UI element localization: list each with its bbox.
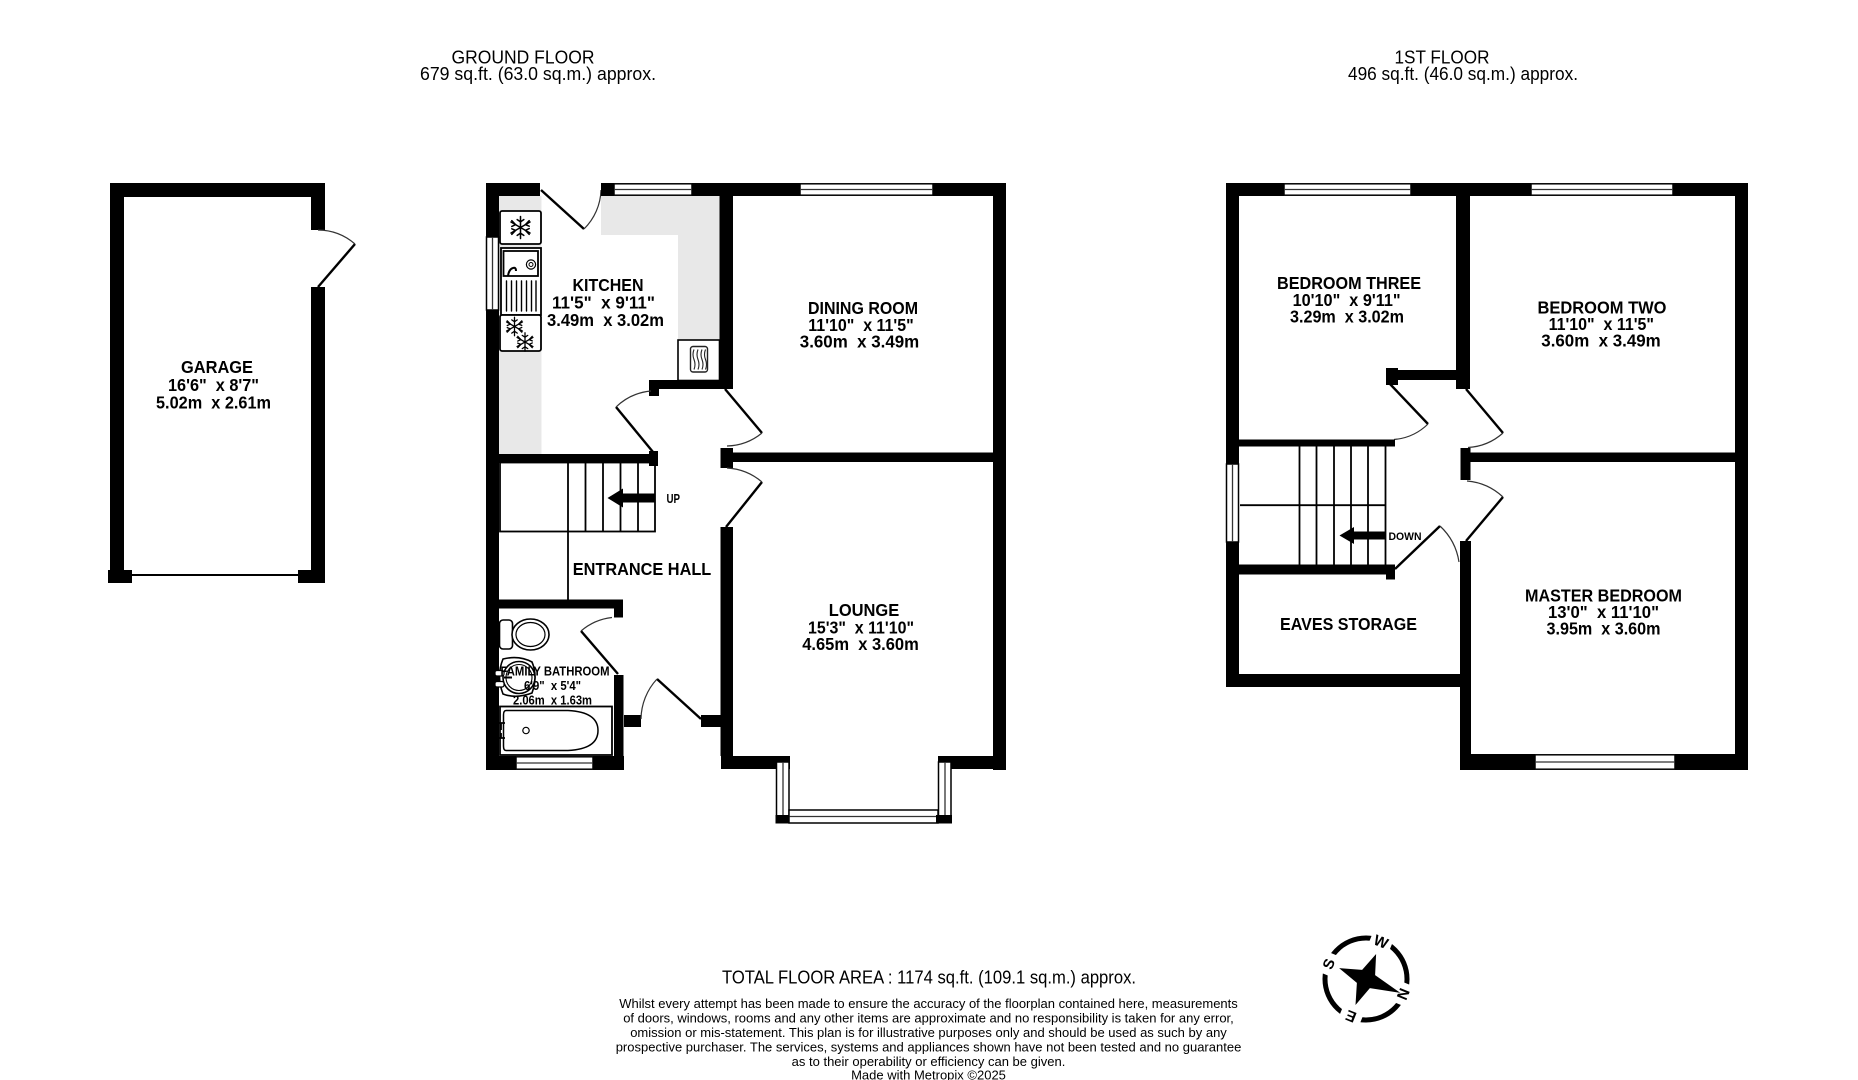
svg-text:679 sq.ft. (63.0 sq.m.) approx: 679 sq.ft. (63.0 sq.m.) approx.	[420, 63, 656, 84]
svg-text:TOTAL FLOOR AREA : 1174 sq.ft.: TOTAL FLOOR AREA : 1174 sq.ft. (109.1 sq…	[722, 967, 1136, 988]
svg-text:3.49m x 3.02m: 3.49m x 3.02m	[547, 310, 664, 330]
svg-text:3.95m x 3.60m: 3.95m x 3.60m	[1547, 619, 1661, 639]
svg-text:prospective purchaser. The ser: prospective purchaser. The services, sys…	[616, 1040, 1242, 1055]
svg-text:EAVES STORAGE: EAVES STORAGE	[1280, 614, 1417, 634]
svg-text:DOWN: DOWN	[1389, 531, 1422, 543]
svg-text:Made with Metropix ©2025: Made with Metropix ©2025	[851, 1068, 1006, 1080]
svg-text:GARAGE: GARAGE	[181, 357, 253, 377]
svg-text:5.02m x 2.61m: 5.02m x 2.61m	[156, 393, 271, 413]
svg-text:UP: UP	[667, 492, 681, 506]
svg-text:omission or mis-statement. Thi: omission or mis-statement. This plan is …	[630, 1025, 1227, 1040]
svg-text:3.60m x 3.49m: 3.60m x 3.49m	[800, 332, 919, 352]
svg-text:3.29m x 3.02m: 3.29m x 3.02m	[1290, 307, 1404, 327]
svg-text:of doors, windows, rooms and a: of doors, windows, rooms and any other i…	[623, 1011, 1234, 1026]
svg-text:FAMILY BATHROOM: FAMILY BATHROOM	[501, 664, 610, 679]
svg-text:Whilst every attempt has been: Whilst every attempt has been made to en…	[619, 996, 1238, 1011]
svg-text:3.60m x 3.49m: 3.60m x 3.49m	[1541, 331, 1660, 351]
svg-text:2.06m x 1.63m: 2.06m x 1.63m	[513, 693, 592, 708]
svg-text:ENTRANCE HALL: ENTRANCE HALL	[573, 559, 712, 579]
svg-text:6'9" x 5'4": 6'9" x 5'4"	[524, 678, 581, 693]
svg-text:4.65m x 3.60m: 4.65m x 3.60m	[802, 634, 919, 654]
svg-text:496 sq.ft. (46.0 sq.m.) approx: 496 sq.ft. (46.0 sq.m.) approx.	[1348, 63, 1578, 84]
